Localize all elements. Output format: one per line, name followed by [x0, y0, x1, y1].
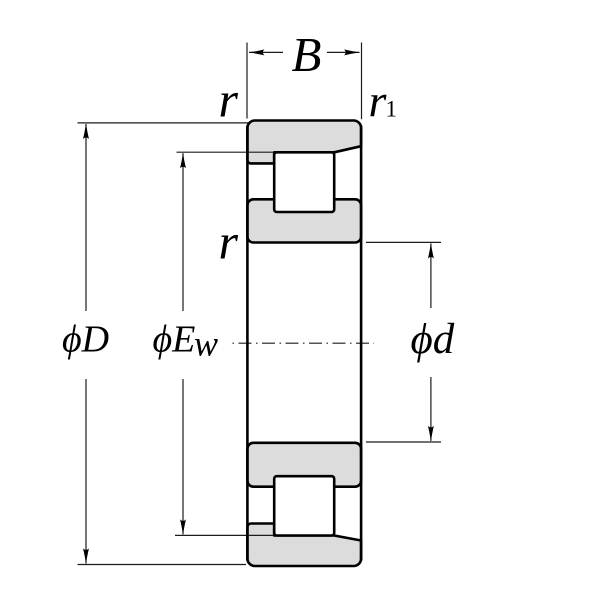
- svg-text:r: r: [219, 214, 239, 270]
- svg-text:B: B: [292, 27, 322, 82]
- svg-text:w: w: [194, 324, 218, 364]
- svg-text:ϕD: ϕD: [62, 319, 109, 361]
- svg-text:r: r: [219, 72, 239, 128]
- svg-text:ϕd: ϕd: [411, 316, 455, 363]
- svg-text:1: 1: [386, 97, 398, 122]
- svg-text:ϕE: ϕE: [153, 319, 196, 361]
